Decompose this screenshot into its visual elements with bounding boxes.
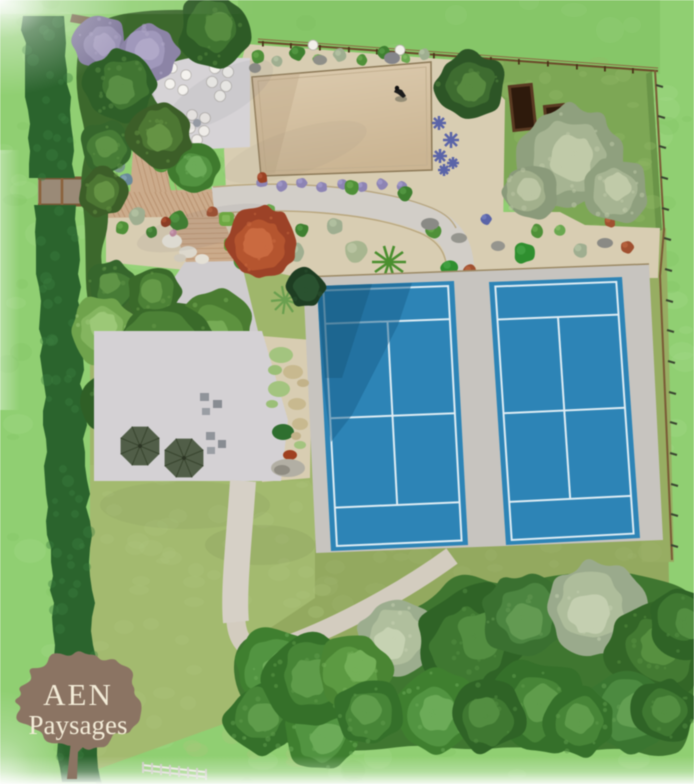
svg-text:AEN: AEN	[43, 677, 113, 712]
svg-text:Paysages: Paysages	[29, 710, 128, 740]
